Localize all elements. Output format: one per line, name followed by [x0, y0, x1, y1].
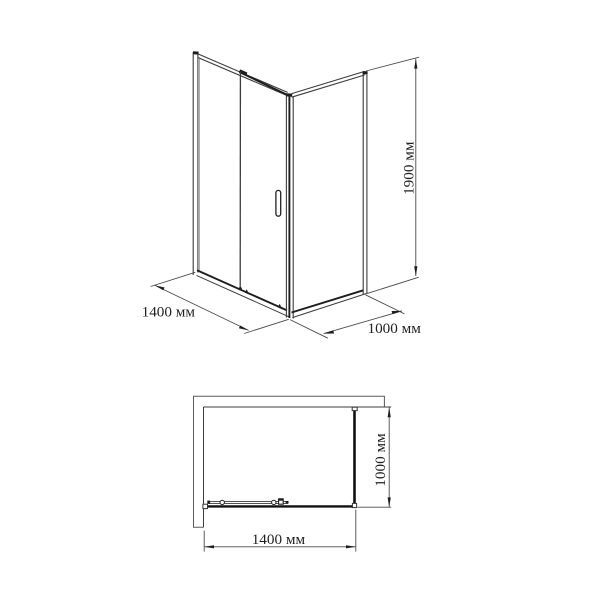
svg-text:1900 мм: 1900 мм: [401, 141, 418, 195]
svg-text:1400 мм: 1400 мм: [252, 531, 306, 548]
svg-text:1400 мм: 1400 мм: [142, 303, 196, 320]
svg-text:1000 мм: 1000 мм: [372, 433, 389, 487]
svg-text:1000 мм: 1000 мм: [367, 320, 421, 337]
